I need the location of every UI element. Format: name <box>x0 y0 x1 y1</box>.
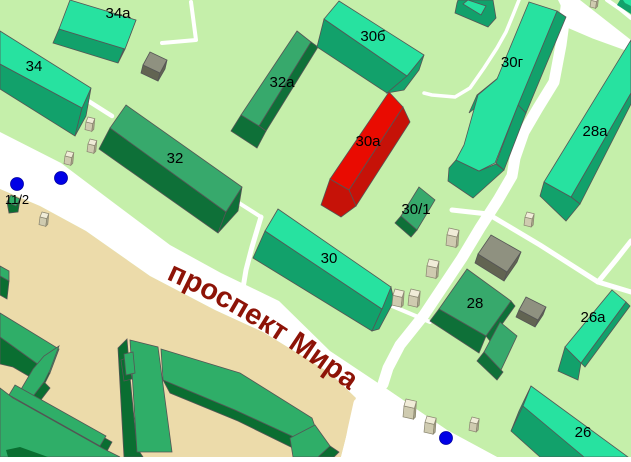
svg-text:30/1: 30/1 <box>401 201 430 218</box>
svg-text:32: 32 <box>167 150 184 167</box>
svg-text:26: 26 <box>575 424 592 441</box>
svg-text:34а: 34а <box>105 5 131 22</box>
svg-text:30а: 30а <box>355 133 381 150</box>
svg-text:11/2: 11/2 <box>5 192 29 207</box>
svg-text:30г: 30г <box>501 54 524 71</box>
svg-text:30б: 30б <box>360 28 385 45</box>
svg-text:30: 30 <box>321 250 338 267</box>
svg-text:26а: 26а <box>580 309 606 326</box>
svg-text:32а: 32а <box>269 74 295 91</box>
svg-text:28а: 28а <box>582 123 608 140</box>
svg-text:28: 28 <box>467 295 484 312</box>
svg-text:34: 34 <box>26 58 43 75</box>
